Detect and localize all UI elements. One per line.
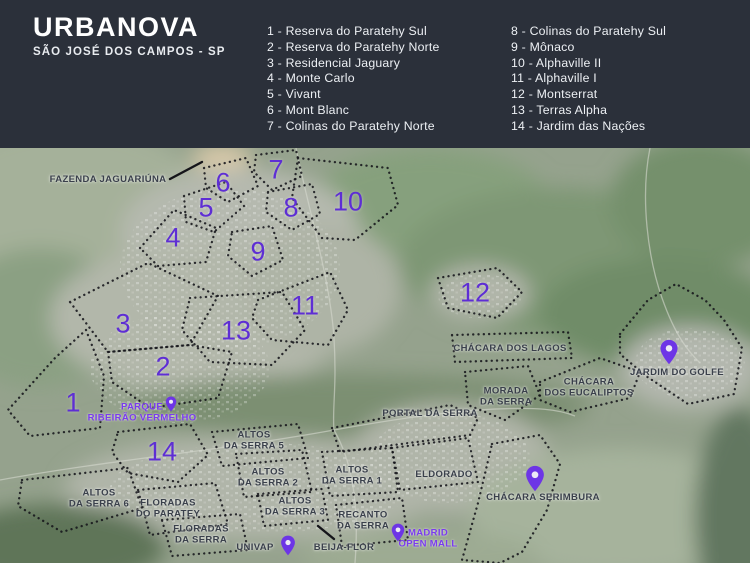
- region-number-13: 13: [221, 316, 251, 347]
- region-number-11: 11: [291, 291, 319, 322]
- region-number-10: 10: [333, 187, 363, 218]
- legend-item-1: 1 - Reserva do Paratehy Sul: [267, 24, 440, 40]
- legend-item-8: 8 - Colinas do Paratehy Sul: [511, 24, 666, 40]
- region-number-5: 5: [198, 193, 213, 224]
- pin-icon: [524, 465, 545, 492]
- legend-item-11: 11 - Alphaville I: [511, 71, 666, 87]
- legend-item-6: 6 - Mont Blanc: [267, 103, 440, 119]
- urbanova-map-infographic: URBANOVA SÃO JOSÉ DOS CAMPOS - SP 1 - Re…: [0, 0, 750, 563]
- pin-icon: [165, 396, 177, 412]
- title-block: URBANOVA SÃO JOSÉ DOS CAMPOS - SP: [33, 12, 226, 58]
- region-number-1: 1: [65, 388, 80, 419]
- region-number-2: 2: [155, 352, 170, 383]
- page-title: URBANOVA: [33, 12, 226, 43]
- region-number-3: 3: [115, 309, 130, 340]
- region-number-14: 14: [147, 437, 177, 468]
- map-label-beija-flor: BEIJA-FLOR: [314, 543, 375, 554]
- map-label-portal-da-serra: PORTAL DA SERRA: [382, 409, 477, 420]
- legend-col-2: 8 - Colinas do Paratehy Sul9 - Mônaco10 …: [511, 24, 666, 135]
- map-label-altos-da-serra-2: ALTOSDA SERRA 2: [238, 468, 298, 489]
- legend-item-5: 5 - Vivant: [267, 87, 440, 103]
- legend-item-7: 7 - Colinas do Paratehy Norte: [267, 119, 440, 135]
- map-label-parque-ribeirao-vermelho: PARQUERIBEIRÃO VERMELHO: [88, 403, 197, 424]
- legend-col-1: 1 - Reserva do Paratehy Sul2 - Reserva d…: [267, 24, 440, 135]
- pin-icon: [391, 523, 406, 542]
- legend-item-9: 9 - Mônaco: [511, 40, 666, 56]
- region-number-7: 7: [268, 155, 283, 186]
- map-label-altos-da-serra-5: ALTOSDA SERRA 5: [224, 431, 284, 452]
- legend-item-14: 14 - Jardim das Nações: [511, 119, 666, 135]
- legend-item-10: 10 - Alphaville II: [511, 56, 666, 72]
- map-label-chacara-serimbura: CHÁCARA SERIMBURA: [486, 493, 600, 504]
- map-label-jardim-do-golfe: JARDIM DO GOLFE: [630, 368, 724, 379]
- map-label-fazenda-jaguariuna: FAZENDA JAGUARIÚNA: [50, 175, 167, 186]
- map-label-altos-da-serra-1: ALTOSDA SERRA 1: [322, 466, 382, 487]
- map-label-altos-da-serra-3: ALTOSDA SERRA 3: [265, 497, 325, 518]
- map-label-floradas-do-paratey: FLORADASDO PARATEY: [136, 499, 200, 520]
- legend-item-2: 2 - Reserva do Paratehy Norte: [267, 40, 440, 56]
- legend-item-4: 4 - Monte Carlo: [267, 71, 440, 87]
- region-number-6: 6: [215, 168, 230, 199]
- region-number-12: 12: [460, 278, 490, 309]
- map-label-recanto-da-serra: RECANTODA SERRA: [337, 511, 389, 532]
- region-number-4: 4: [165, 223, 180, 254]
- region-number-8: 8: [283, 193, 298, 224]
- map-overlay: 1234567891011121314FAZENDA JAGUARIÚNACHÁ…: [0, 148, 750, 563]
- map-label-chacara-dos-lagos: CHÁCARA DOS LAGOS: [453, 344, 566, 355]
- region-number-9: 9: [250, 237, 265, 268]
- header: URBANOVA SÃO JOSÉ DOS CAMPOS - SP 1 - Re…: [0, 0, 750, 148]
- legend-item-12: 12 - Montserrat: [511, 87, 666, 103]
- map-label-altos-da-serra-6: ALTOSDA SERRA 6: [69, 489, 129, 510]
- map-label-morada-da-serra: MORADADA SERRA: [480, 387, 532, 408]
- legend-item-3: 3 - Residencial Jaguary: [267, 56, 440, 72]
- map-label-eldorado: ELDORADO: [415, 470, 472, 481]
- legend-item-13: 13 - Terras Alpha: [511, 103, 666, 119]
- page-subtitle: SÃO JOSÉ DOS CAMPOS - SP: [33, 46, 226, 58]
- pin-icon: [280, 535, 296, 556]
- map: 1234567891011121314FAZENDA JAGUARIÚNACHÁ…: [0, 148, 750, 563]
- map-label-floradas-da-serra: FLORADASDA SERRA: [173, 525, 229, 546]
- map-label-madrid-open-mall: MADRIDOPEN MALL: [398, 529, 457, 550]
- map-pin-chacara-serimbura: [524, 465, 545, 492]
- map-pin-parque-ribeirao-vermelho: [165, 396, 177, 412]
- map-pin-madrid-open-mall: [391, 523, 406, 542]
- pin-icon: [659, 339, 679, 365]
- map-pin-jardim-do-golfe: [659, 339, 679, 365]
- map-pin-univap: [280, 535, 296, 556]
- map-label-chacara-dos-eucaliptos: CHÁCARADOS EUCALIPTOS: [544, 378, 633, 399]
- map-label-univap: UNIVAP: [236, 543, 273, 554]
